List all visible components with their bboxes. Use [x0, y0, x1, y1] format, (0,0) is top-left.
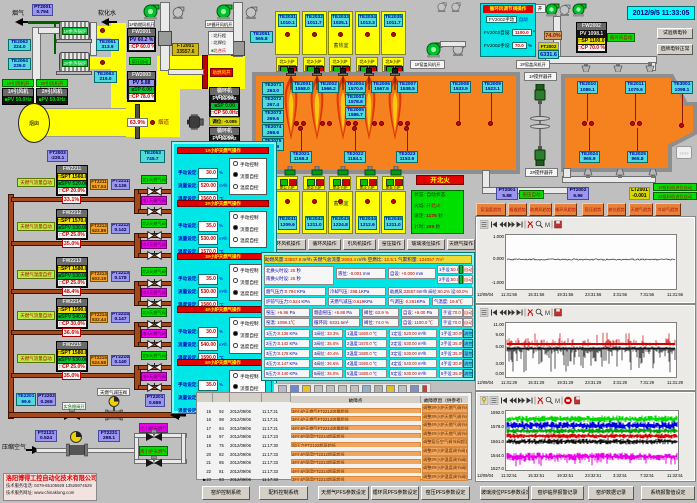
svg-text:M: M — [545, 311, 550, 317]
svg-text:M: M — [555, 399, 560, 405]
svg-text:M: M — [545, 223, 550, 229]
